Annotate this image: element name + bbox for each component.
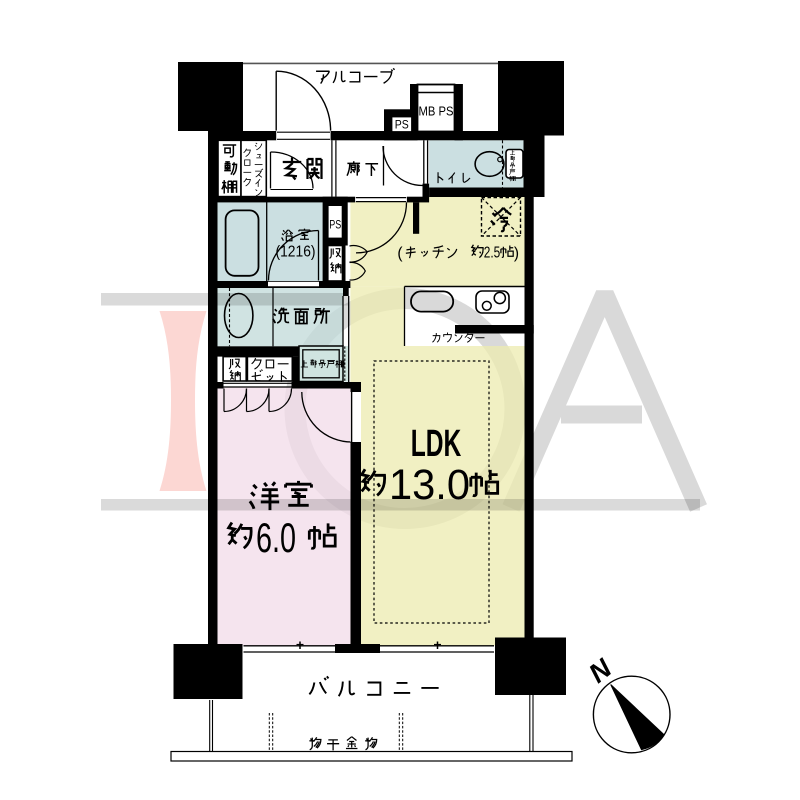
svg-text:LDK: LDK [411, 422, 462, 465]
svg-text:PS: PS [395, 120, 409, 132]
svg-text:2.5: 2.5 [484, 244, 501, 261]
svg-text:MB PS: MB PS [419, 104, 454, 119]
svg-text:6.0: 6.0 [256, 514, 296, 561]
svg-text:PS: PS [329, 220, 341, 232]
svg-text:(1216): (1216) [276, 243, 316, 260]
svg-text:): ) [514, 245, 519, 262]
svg-text:(: ( [397, 245, 403, 262]
